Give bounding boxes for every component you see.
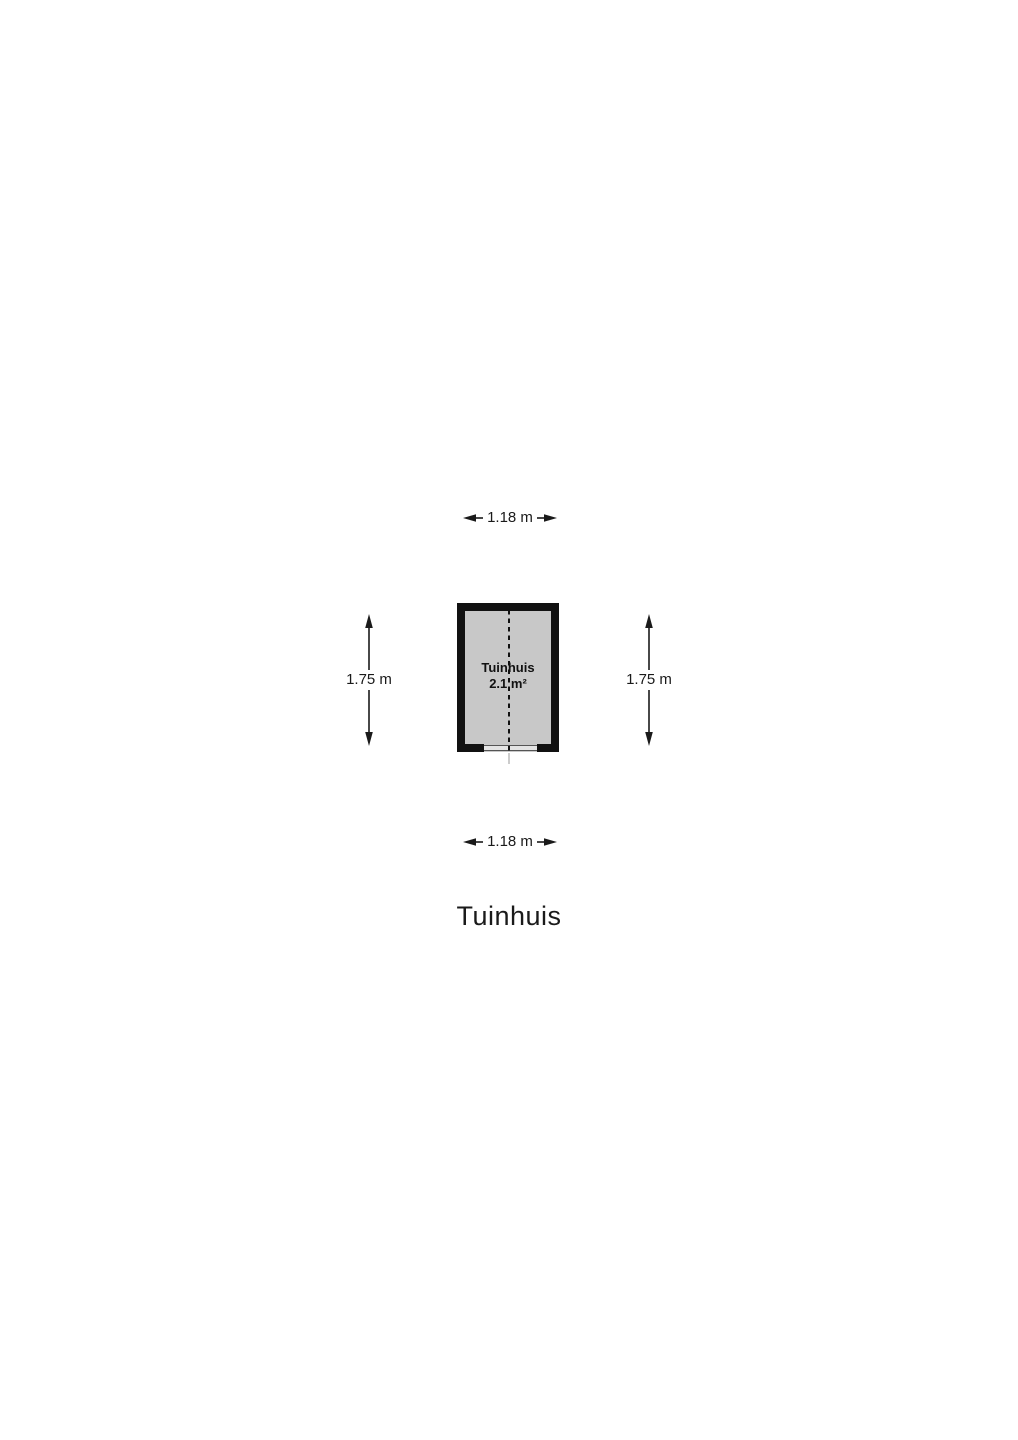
centerline [499, 607, 519, 767]
plan-title: Tuinhuis [0, 901, 1018, 932]
dimension-left-label: 1.75 m [343, 670, 395, 690]
dimension-top-label: 1.18 m [487, 509, 533, 527]
dimension-bottom-label: 1.18 m [487, 833, 533, 851]
arrow-right-icon [537, 837, 557, 847]
dimension-left: 1.75 m [363, 614, 375, 746]
arrow-left-icon [463, 513, 483, 523]
arrow-right-icon [537, 513, 557, 523]
arrow-left-icon [463, 837, 483, 847]
dimension-right-label: 1.75 m [623, 670, 675, 690]
dimension-bottom: 1.18 m [463, 833, 557, 851]
dimension-top: 1.18 m [463, 509, 557, 527]
floorplan-canvas: 1.18 m 1.75 m 1.75 m Tuinhuis 2.1 m² [0, 0, 1018, 1440]
dimension-right: 1.75 m [643, 614, 655, 746]
